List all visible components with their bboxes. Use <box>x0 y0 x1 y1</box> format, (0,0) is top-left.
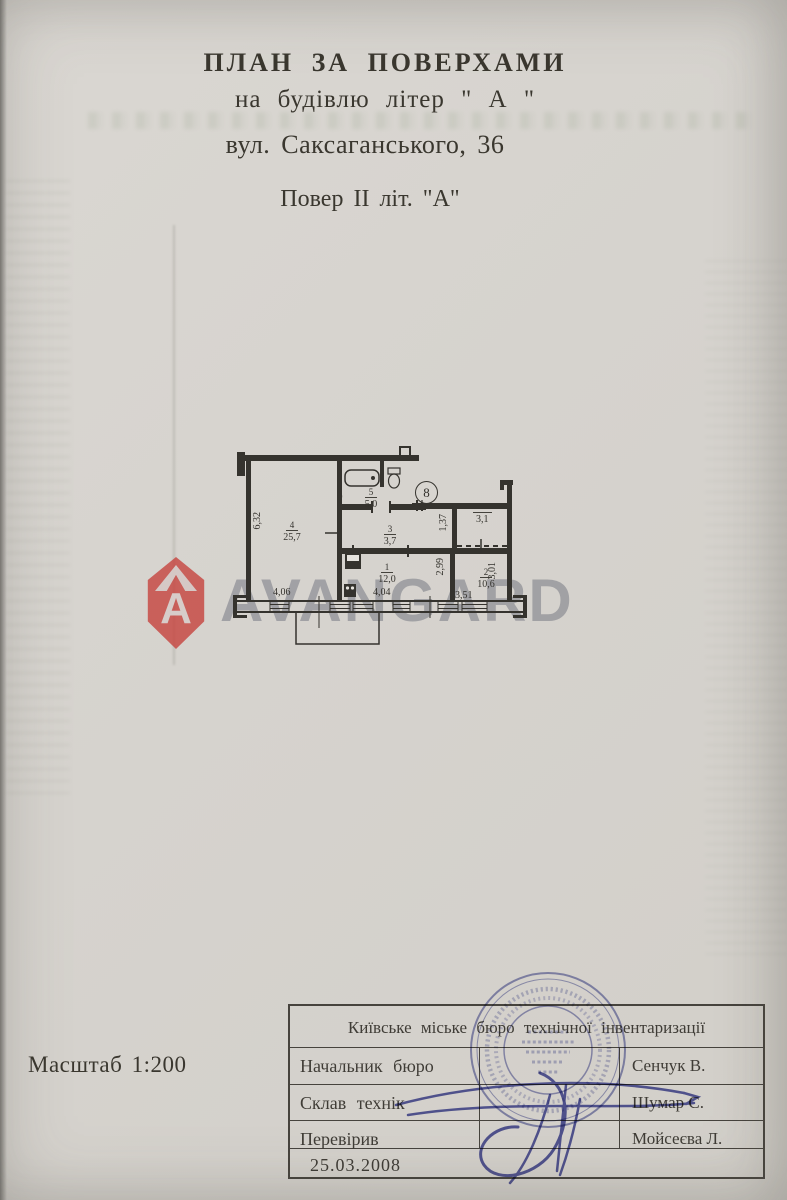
floor-plan-drawing: 8 4 25,7 5 5,0 3 3,7 1 12,0 2 10,6 3,1 6… <box>233 444 533 654</box>
logo-letter: A <box>146 587 206 631</box>
floor-line: Повер II літ. "А" <box>170 186 570 213</box>
dim-left-wall: 6,32 <box>252 512 263 530</box>
dim-room2-depth: 3,01 <box>487 562 498 580</box>
dim-bottom-3: 3,51 <box>455 590 473 601</box>
floor-plan-linework <box>233 444 533 654</box>
bleed-through-left-margin <box>6 180 70 800</box>
bleed-through-text-band <box>88 112 754 129</box>
building-letter-line: на будівлю літер " А " <box>170 86 600 114</box>
handwritten-signature <box>388 1053 718 1193</box>
scale-label: Масштаб 1:200 <box>28 1052 186 1078</box>
room-label-living: 4 25,7 <box>278 516 306 543</box>
scanned-floor-plan-page: ПЛАН ЗА ПОВЕРХАМИ на будівлю літер " А "… <box>0 0 787 1200</box>
dim-room1-depth: 2,99 <box>435 558 446 576</box>
room-label-bathroom: 5 5,0 <box>357 483 385 510</box>
avangard-logo-icon: A <box>146 557 206 649</box>
dim-bottom-2: 4,04 <box>373 587 391 598</box>
room-label-kitchen: 1 12,0 <box>373 558 401 585</box>
room-label-corridor: 3 3,7 <box>376 520 404 547</box>
bleed-through-right-margin <box>705 260 787 960</box>
closet-area-label: 3,1 <box>473 512 492 525</box>
document-title: ПЛАН ЗА ПОВЕРХАМИ <box>170 48 600 78</box>
dim-corridor: 1,37 <box>438 514 449 532</box>
address-line: вул. Саксаганського, 36 <box>150 130 580 160</box>
dim-bottom-1: 4,06 <box>273 587 291 598</box>
apartment-number-badge: 8 <box>415 481 438 504</box>
